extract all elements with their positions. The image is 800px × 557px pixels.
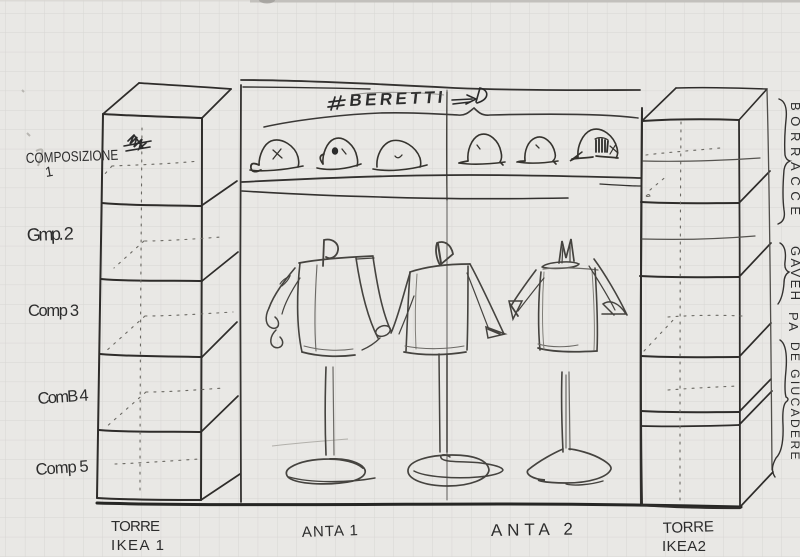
svg-text:COMPOSIZIONE: COMPOSIZIONE [26,147,119,167]
svg-text:Comp 5: Comp 5 [35,457,89,479]
svg-text:DE GIUCADERE: DE GIUCADERE [788,342,800,460]
svg-text:Gmp. 2: Gmp. 2 [26,223,74,245]
svg-text:ANTA 2: ANTA 2 [491,520,577,540]
svg-text:ANTA 1: ANTA 1 [302,522,361,541]
svg-text:TORRE: TORRE [111,518,161,535]
svg-text:Comp 3: Comp 3 [28,302,79,320]
svg-text:TORRE: TORRE [663,518,716,537]
svg-text:ComB 4: ComB 4 [37,386,89,408]
svg-text:GAVEH: GAVEH [788,246,800,302]
svg-text:PA: PA [786,312,800,332]
svg-text:IKEA 1: IKEA 1 [111,537,165,554]
svg-text:IKEA2: IKEA2 [662,538,707,555]
